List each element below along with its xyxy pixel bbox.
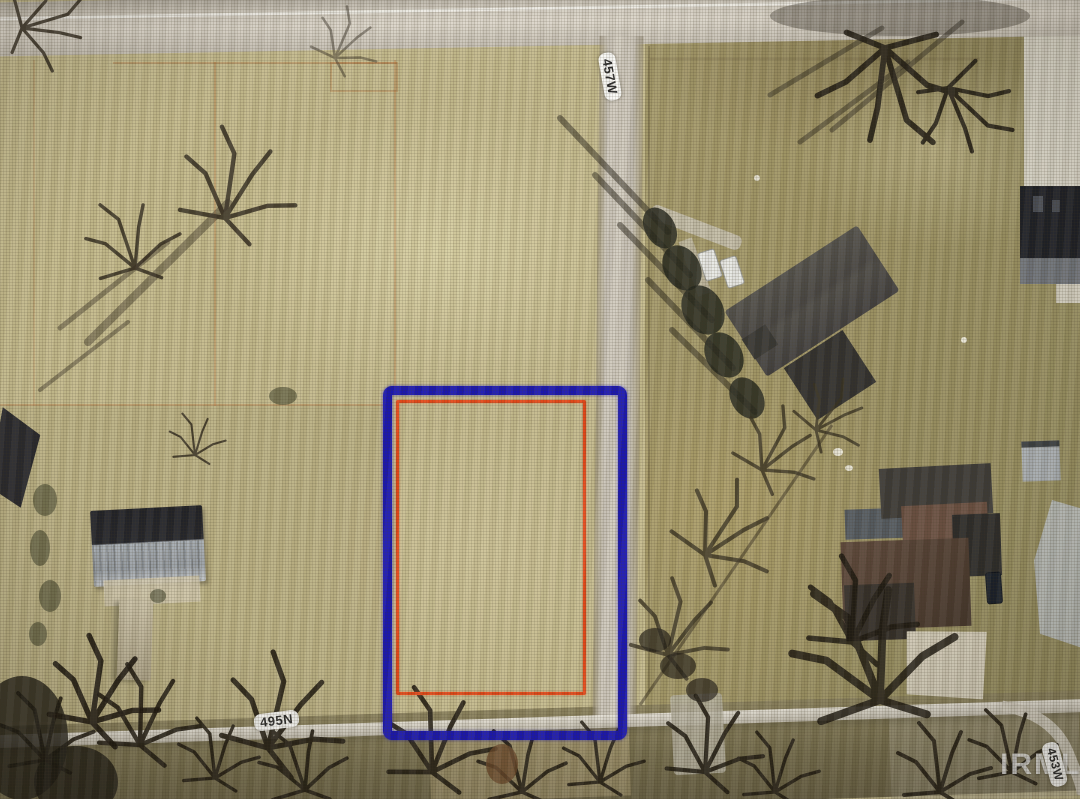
parcel-line <box>33 60 35 406</box>
pale-ground-patch <box>1024 24 1080 194</box>
shed-roof <box>1021 440 1060 481</box>
building-top-right-section <box>1020 258 1080 284</box>
watermark-irmls: IRMLS <box>1000 748 1080 782</box>
fence-line <box>650 58 980 60</box>
parcel-line <box>0 404 386 406</box>
aerial-photo: 457W 495N 453W IRMLS <box>0 0 1080 799</box>
fence-line <box>976 58 978 92</box>
driveway <box>117 599 154 680</box>
building-top-right <box>1020 186 1080 260</box>
fence-line <box>648 46 650 692</box>
gravel-patch <box>670 693 726 776</box>
car <box>985 571 1003 604</box>
building-detail <box>1052 200 1060 212</box>
parcel-outline-red <box>396 400 586 695</box>
parcel-line <box>214 62 216 406</box>
barn-roof <box>90 505 206 587</box>
house-roof-wing <box>844 583 916 641</box>
parcel-notch <box>330 62 398 92</box>
building-detail <box>1033 196 1043 212</box>
parcel-line <box>394 60 396 390</box>
